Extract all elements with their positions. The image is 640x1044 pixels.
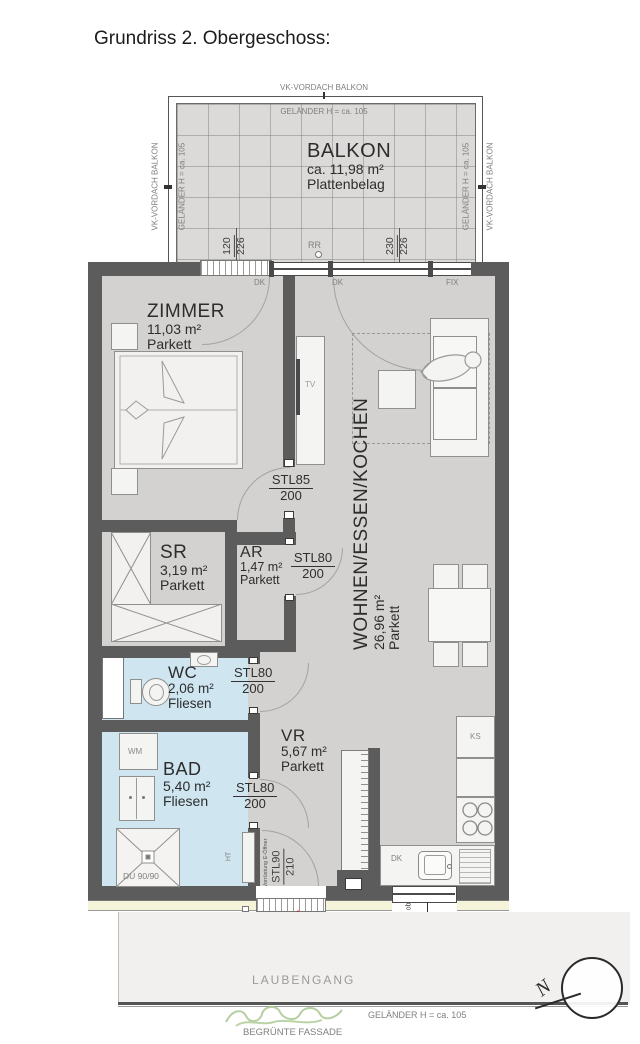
room-floor: Parkett (387, 362, 402, 650)
toilet-seat (149, 684, 164, 701)
gelaender-label-bottom: GELÄNDER H = ca. 105 (368, 1010, 466, 1020)
zimmer-label: ZIMMER 11,03 m² Parkett (147, 302, 225, 352)
nightstand (111, 468, 138, 495)
vordach-label-right: VK-VORDACH BALKON (486, 137, 495, 237)
wall-wc-bad (102, 720, 260, 732)
window-label-fix: FIX (446, 278, 458, 287)
room-name: ZIMMER (147, 302, 225, 322)
door-label-entrance: STL90 210 (270, 841, 297, 893)
insulation-strip (88, 900, 256, 911)
room-floor: Parkett (160, 578, 207, 593)
person-icon (417, 334, 493, 398)
vanity-divider (136, 778, 137, 819)
wall-bottom-3 (457, 886, 509, 900)
jamb-cap (249, 657, 258, 664)
tick-top (323, 92, 325, 99)
ar-label: AR 1,47 m² Parkett (240, 544, 282, 588)
room-name: WOHNEN/ESSEN/KOCHEN (352, 362, 372, 650)
bad-label: BAD 5,40 m² Fliesen (163, 760, 210, 809)
vordach-label-top: VK-VORDACH BALKON (262, 83, 386, 92)
dim1-den: 226 (235, 237, 248, 255)
room-area: 26,96 m² (372, 362, 387, 650)
floor-plan: Grundriss 2. Obergeschoss: VK-VORDACH BA… (0, 0, 640, 1044)
door-label-ar: STL80 200 (290, 551, 336, 582)
dining-chair (462, 564, 488, 589)
room-name: WC (168, 664, 214, 682)
drainboard (459, 849, 491, 884)
insulation-strip (457, 900, 509, 911)
kitchen-window (392, 886, 457, 903)
door-type: STL80 (233, 781, 277, 797)
wall-ar-right (284, 596, 296, 646)
bed (114, 351, 243, 469)
door-height: 200 (231, 682, 275, 697)
rr-label-balcony: RR (308, 240, 321, 250)
dining-chair (433, 642, 459, 667)
bath-vanity (119, 776, 155, 821)
door-type: STL85 (269, 473, 313, 489)
glazing-line (393, 893, 455, 895)
nightstand (111, 323, 138, 350)
vordach-label-left: VK-VORDACH BALKON (151, 137, 160, 237)
wall-bottom-1 (88, 886, 256, 900)
room-name: SR (160, 543, 207, 563)
dining-chair (462, 642, 488, 667)
kitchen-sink-basin (424, 855, 446, 875)
jamb-cap (285, 594, 294, 601)
fassade-label: BEGRÜNTE FASSADE (243, 1027, 342, 1038)
vanity-knob (142, 796, 145, 799)
door-height: 200 (233, 797, 277, 812)
wohnen-label: WOHNEN/ESSEN/KOCHEN 26,96 m² Parkett (352, 362, 401, 650)
room-floor: Parkett (147, 337, 225, 352)
jamb-cap (249, 772, 258, 779)
dim2-den: 226 (398, 237, 411, 255)
towel-radiator (242, 832, 255, 883)
door-type: STL80 (231, 666, 275, 682)
gelaender-label-right: GELÄNDER H = ca. 105 (462, 137, 471, 237)
sr-label: SR 3,19 m² Parkett (160, 543, 207, 593)
wc-shaft (102, 657, 124, 719)
glazing-line (272, 268, 471, 270)
gelaender-label-left: GELÄNDER H = ca. 105 (178, 137, 187, 237)
room-floor: Fliesen (168, 697, 214, 711)
fridge-label: KS (470, 732, 481, 741)
ht-label: HT (226, 844, 233, 870)
dim2-num: 230 (384, 235, 398, 257)
balcony-name: BALKON (307, 141, 391, 162)
vr-wardrobe-ticks (361, 753, 368, 869)
jamb-cap (249, 822, 258, 829)
room-floor: Parkett (240, 574, 282, 587)
kitchen-counter (456, 758, 495, 797)
vr-label: VR 5,67 m² Parkett (281, 727, 327, 774)
wall-top-left (88, 262, 200, 276)
wall-vr-kitchen (368, 748, 380, 888)
jamb-cap (284, 459, 294, 467)
tv-board (296, 336, 325, 465)
dining-table (428, 588, 491, 642)
wardrobe (111, 604, 222, 642)
wall-wc-top (102, 646, 260, 658)
balcony-label: BALKON ca. 11,98 m² Plattenbelag (307, 141, 391, 192)
room-area: 5,67 m² (281, 745, 327, 759)
door-height: 200 (290, 567, 336, 582)
e-opener-note: Vorrüstung E-Öffner (263, 837, 269, 889)
door-type: STL90 (270, 848, 284, 884)
jamb-cap (285, 538, 294, 545)
jamb-cap (249, 707, 258, 714)
laubengang-rail-2 (118, 1006, 628, 1007)
door-label-bad: STL80 200 (233, 781, 277, 812)
balcony-door-threshold (200, 260, 272, 276)
kitchen-window-label-dk: DK (391, 854, 402, 863)
tv-label: TV (305, 380, 315, 389)
tv-panel (296, 359, 300, 415)
wardrobe (111, 532, 151, 605)
door-height: 200 (266, 489, 316, 504)
room-name: VR (281, 727, 327, 745)
door-label-wc: STL80 200 (231, 666, 275, 697)
mullion (269, 261, 274, 277)
room-floor: Fliesen (163, 794, 210, 809)
door-height: 210 (285, 858, 298, 876)
wm-label: WM (128, 747, 142, 756)
wall-vr-2 (248, 713, 260, 778)
mullion (328, 261, 333, 277)
page-title: Grundriss 2. Obergeschoss: (94, 28, 331, 50)
insulation-strip (326, 900, 392, 911)
window-band-top (272, 262, 471, 276)
balcony-dim-2: 230 226 (384, 226, 410, 266)
wall-left (88, 262, 102, 900)
dining-chair (433, 564, 459, 589)
faucet (447, 864, 452, 869)
room-area: 3,19 m² (160, 563, 207, 578)
room-area: 11,03 m² (147, 322, 225, 337)
tick-right (478, 185, 486, 189)
balcony-floor-type: Plattenbelag (307, 177, 391, 192)
rr-pipe-icon (315, 251, 322, 258)
mullion (428, 261, 433, 277)
room-area: 5,40 m² (163, 779, 210, 794)
compass-icon (561, 957, 623, 1019)
wall-sr-ar (225, 532, 237, 646)
room-name: BAD (163, 760, 210, 779)
toilet-tank (130, 679, 142, 704)
balcony-area: ca. 11,98 m² (307, 162, 391, 177)
door-type: STL80 (291, 551, 335, 567)
laubengang-label: LAUBENGANG (252, 973, 355, 987)
wall-zimmer-sr (96, 520, 237, 532)
stove-burners (460, 799, 493, 840)
room-floor: Parkett (281, 760, 327, 774)
room-name: AR (240, 544, 282, 561)
room-area: 1,47 m² (240, 561, 282, 574)
dim1-num: 120 (221, 235, 235, 257)
wall-right (495, 262, 509, 900)
vanity-knob (129, 796, 132, 799)
tick-left (164, 185, 172, 189)
room-area: 2,06 m² (168, 682, 214, 696)
shower-label: DU 90/90 (123, 871, 159, 881)
wall-zimmer-wohnen (283, 276, 295, 467)
door-label-stl85: STL85 200 (266, 473, 316, 504)
gelaender-label-top: GELÄNDER H = ca. 105 (262, 107, 386, 116)
vr-base-inset (345, 878, 362, 890)
wc-label: WC 2,06 m² Fliesen (168, 664, 214, 711)
